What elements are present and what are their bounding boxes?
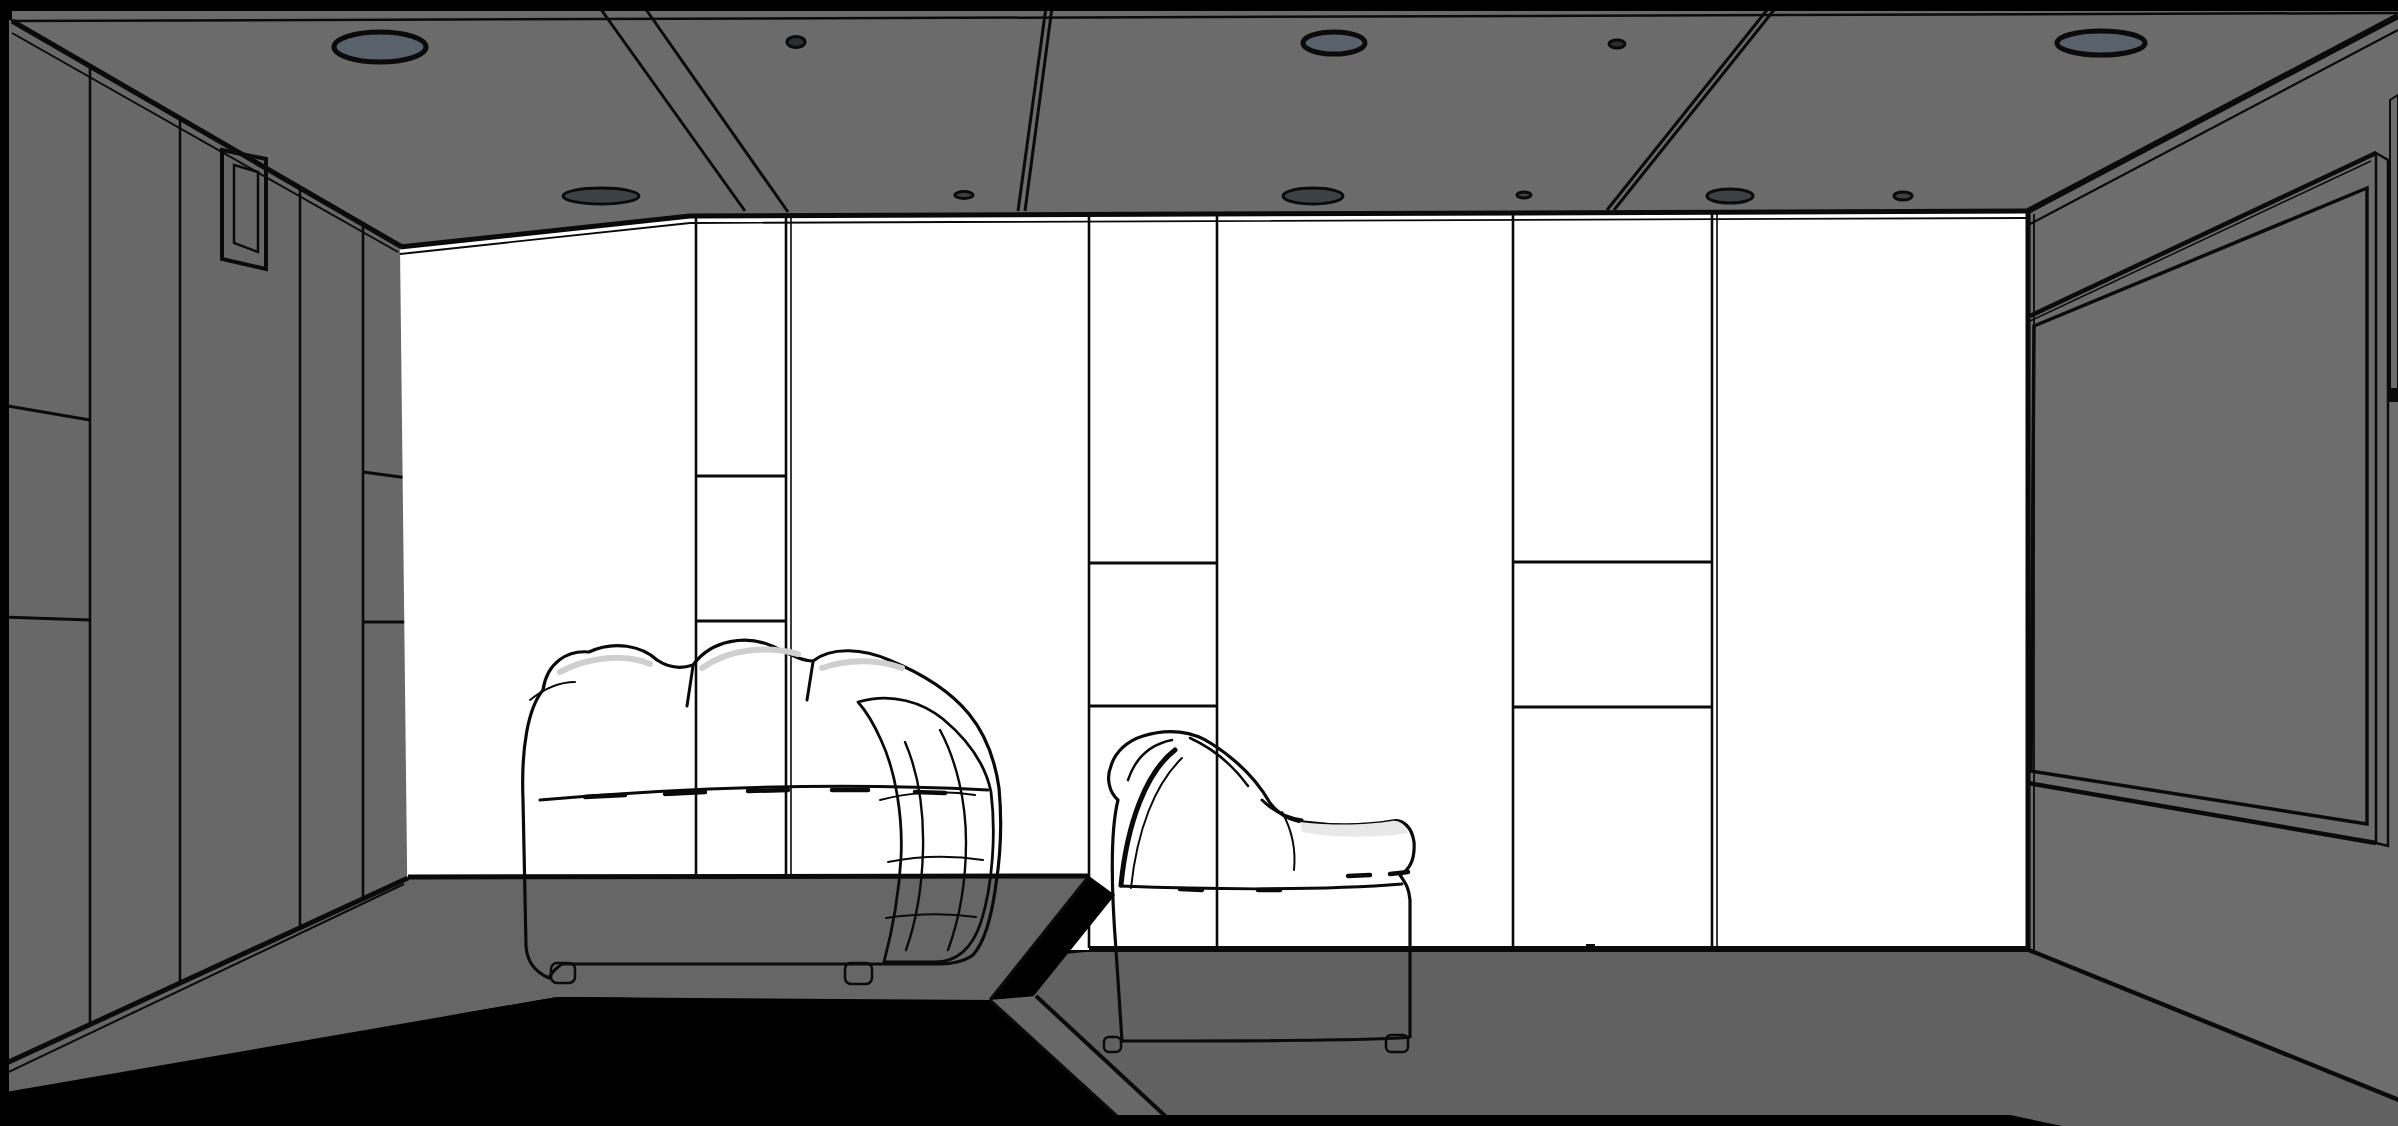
bottom-border-band: [0, 1115, 2062, 1126]
recessed-light-edge: [955, 192, 973, 199]
recessed-light-large: [1303, 32, 1365, 54]
recessed-light-large: [334, 32, 426, 62]
recessed-light-small: [787, 37, 805, 48]
recessed-light-large: [2057, 31, 2145, 55]
recessed-light-edge: [1283, 188, 1343, 204]
back-wall: [400, 211, 2028, 963]
platform-backwall-junction: [408, 876, 1089, 877]
recessed-light-edge: [1894, 192, 1912, 200]
right-wall: [2028, 16, 2398, 1112]
sliver-bracket: [2388, 388, 2398, 402]
recessed-light-small: [1609, 40, 1625, 48]
recessed-light-edge: [1707, 189, 1753, 203]
left-border: [0, 0, 9, 1126]
render-viewport[interactable]: [0, 0, 2398, 1126]
scene-canvas[interactable]: [0, 0, 2398, 1126]
top-border: [0, 0, 2398, 11]
recessed-light-edge: [563, 188, 639, 204]
back-wall-plane: [400, 211, 2028, 950]
recessed-light-edge: [1517, 192, 1531, 198]
